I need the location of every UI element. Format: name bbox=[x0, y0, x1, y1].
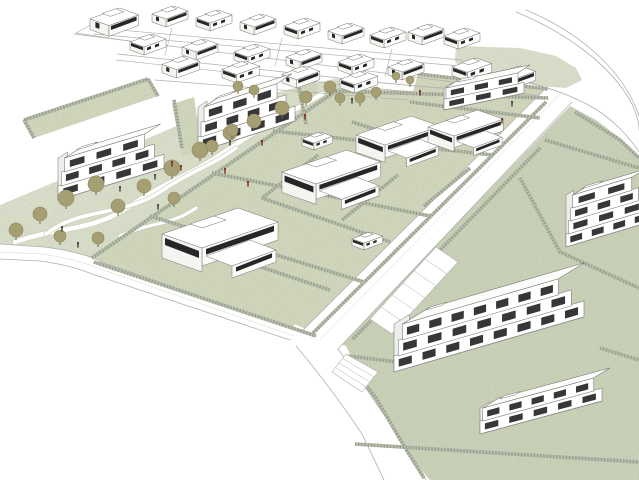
detached-house bbox=[338, 54, 374, 75]
tree-icon bbox=[249, 85, 259, 95]
detached-house bbox=[234, 44, 270, 65]
tree-icon bbox=[58, 190, 74, 206]
tree-icon bbox=[300, 91, 312, 103]
tree-icon bbox=[247, 114, 261, 128]
tree-icon bbox=[335, 93, 345, 103]
detached-house bbox=[328, 23, 364, 44]
detached-house bbox=[130, 34, 166, 55]
tree-icon bbox=[54, 230, 66, 242]
architectural-site-plan-rendering bbox=[0, 0, 639, 480]
tree-icon bbox=[355, 93, 365, 103]
tree-icon bbox=[92, 232, 104, 244]
tree-icon bbox=[192, 142, 208, 158]
site-plan-canvas bbox=[0, 0, 639, 480]
tree-icon bbox=[88, 176, 104, 192]
detached-house bbox=[222, 61, 260, 83]
tree-icon bbox=[406, 76, 414, 84]
tree-icon bbox=[137, 179, 151, 193]
garden-building-a bbox=[24, 79, 158, 138]
tree-icon bbox=[206, 140, 218, 152]
detached-house bbox=[90, 8, 139, 36]
detached-house bbox=[370, 27, 406, 48]
tree-icon bbox=[324, 81, 336, 93]
tree-icon bbox=[275, 101, 289, 115]
tree-icon bbox=[33, 207, 47, 221]
detached-house bbox=[240, 14, 276, 35]
tree-icon bbox=[168, 192, 180, 204]
detached-house bbox=[196, 10, 232, 31]
tree-icon bbox=[392, 72, 400, 80]
tree-icon bbox=[9, 223, 23, 237]
tree-icon bbox=[233, 81, 243, 91]
detached-house bbox=[408, 24, 444, 45]
tree-icon bbox=[111, 199, 125, 213]
detached-house bbox=[284, 18, 320, 39]
detached-house bbox=[444, 28, 480, 49]
detached-house bbox=[152, 6, 188, 27]
tree-icon bbox=[371, 87, 381, 97]
tree-icon bbox=[226, 124, 238, 136]
